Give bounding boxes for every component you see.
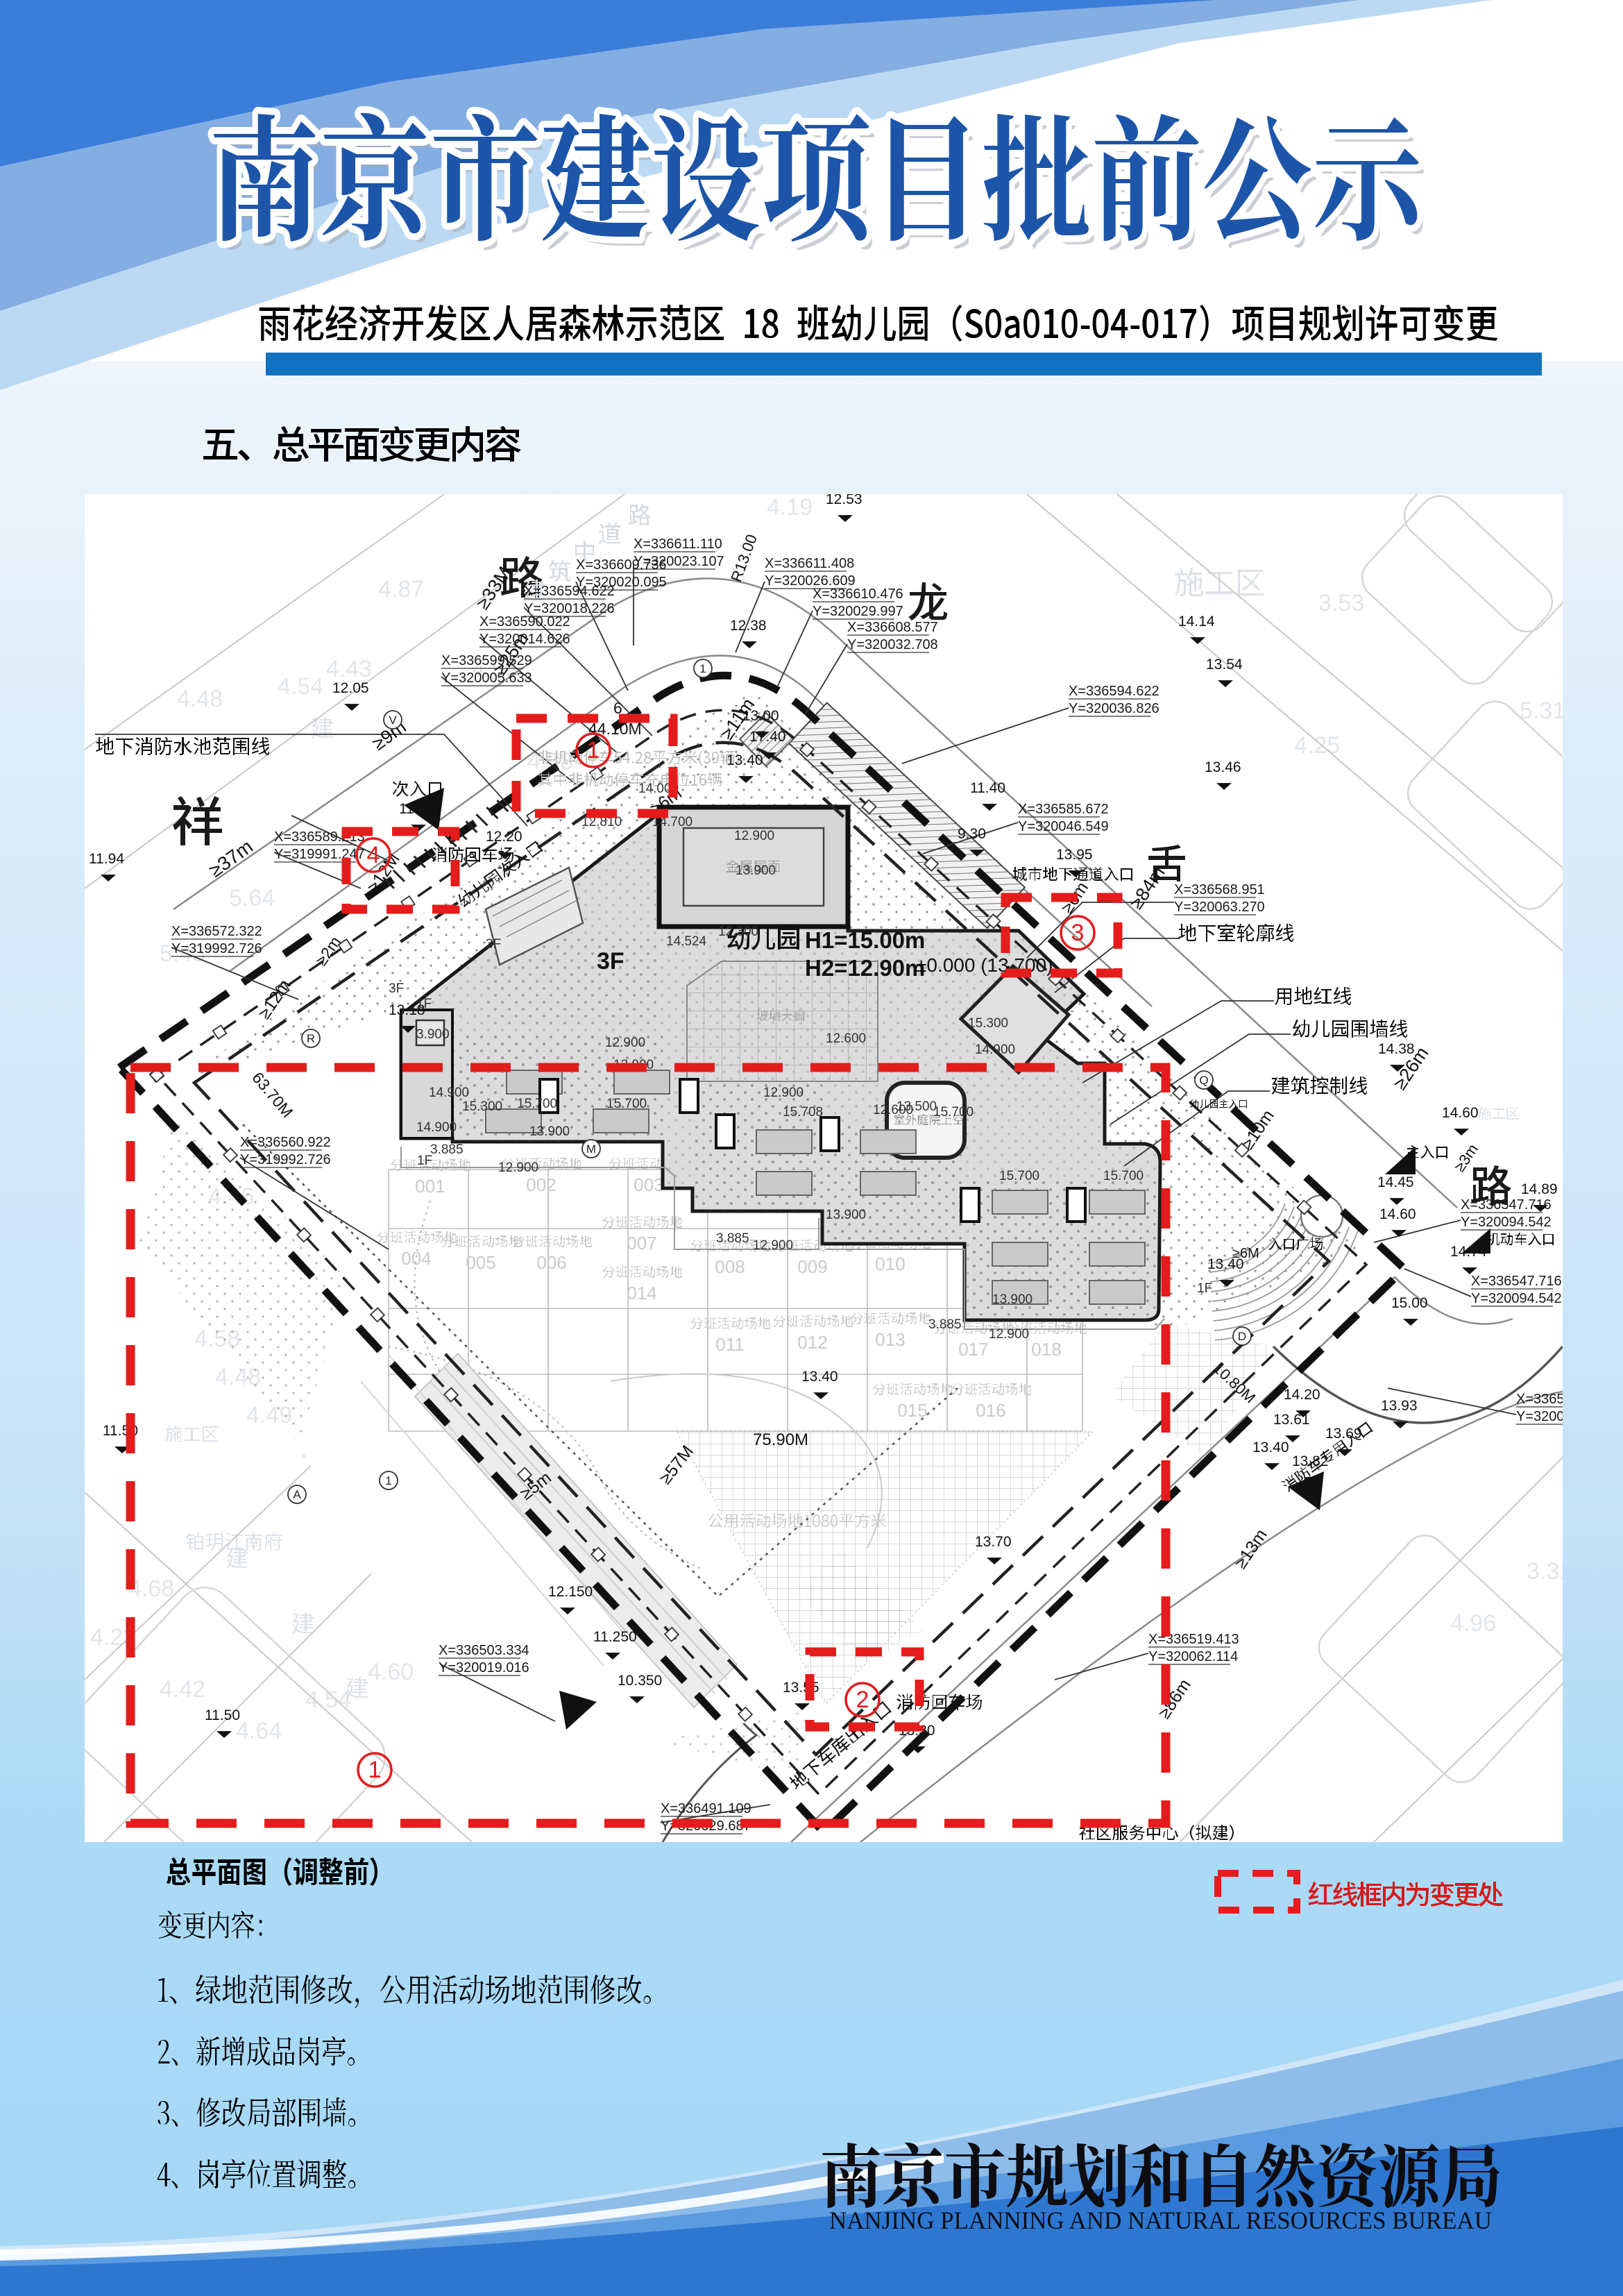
svg-text:13.00: 13.00 [742,708,779,724]
svg-text:13.54: 13.54 [1206,657,1243,673]
svg-text:X=336560.922: X=336560.922 [240,1135,331,1150]
svg-text:001: 001 [415,1176,445,1197]
svg-text:X=336608.577: X=336608.577 [847,620,938,635]
svg-text:4.43: 4.43 [326,656,372,682]
svg-text:Q: Q [1199,1074,1208,1087]
svg-text:4.54: 4.54 [278,673,323,700]
svg-text:13.95: 13.95 [1056,847,1093,863]
svg-text:Y=320094.542: Y=320094.542 [1471,1291,1562,1306]
svg-text:12.900: 12.900 [763,1086,804,1100]
svg-text:003: 003 [634,1174,663,1195]
svg-text:Y=319992.726: Y=319992.726 [240,1152,331,1167]
svg-text:75.90M: 75.90M [753,1430,808,1449]
svg-text:1: 1 [368,1757,382,1783]
svg-text:Y=320062.114: Y=320062.114 [1148,1649,1238,1664]
svg-text:11.50: 11.50 [205,1707,240,1723]
svg-text:12.600: 12.600 [873,1103,913,1117]
svg-text:Y=320036.826: Y=320036.826 [1069,701,1159,716]
svg-text:17.40: 17.40 [749,729,786,745]
svg-text:4.54: 4.54 [305,1687,351,1713]
svg-text:14.14: 14.14 [1178,614,1215,630]
svg-text:15.300: 15.300 [968,1016,1008,1031]
svg-text:15.300: 15.300 [462,1099,502,1114]
svg-text:14.900: 14.900 [429,1086,469,1100]
svg-text:X=336611.408: X=336611.408 [765,556,854,571]
svg-text:H1=15.00m: H1=15.00m [805,927,925,953]
svg-text:13.900: 13.900 [736,863,776,878]
svg-text:1: 1 [699,662,706,675]
svg-text:014: 014 [627,1283,656,1303]
svg-text:D: D [1238,1330,1246,1343]
svg-text:R: R [307,1032,315,1045]
svg-text:12.20: 12.20 [486,829,522,845]
svg-text:4.42: 4.42 [160,1676,205,1703]
svg-text:X=336611.110: X=336611.110 [634,537,722,552]
svg-text:15.700: 15.700 [933,1105,974,1120]
svg-text:12.600: 12.600 [826,1031,866,1046]
svg-text:3F: 3F [389,981,404,996]
svg-text:3.885: 3.885 [928,1317,962,1332]
svg-text:4.64: 4.64 [236,1718,282,1744]
svg-text:X=336594.622: X=336594.622 [524,584,615,599]
svg-text:5.31: 5.31 [1520,698,1565,724]
svg-text:12.900: 12.900 [498,1160,538,1175]
svg-text:H2=12.90m: H2=12.90m [805,955,925,981]
svg-text:13.900: 13.900 [826,1208,866,1222]
svg-text:15.700: 15.700 [517,1097,557,1111]
svg-text:M: M [586,1142,596,1156]
svg-text:X=336572.322: X=336572.322 [171,924,262,939]
svg-text:15.00: 15.00 [1391,1295,1428,1311]
svg-text:Y=320029.997: Y=320029.997 [813,604,903,619]
svg-text:1F: 1F [417,1154,432,1168]
svg-text:012: 012 [797,1332,827,1353]
svg-text:4.19: 4.19 [767,494,813,521]
svg-text:009: 009 [797,1256,827,1277]
svg-text:016: 016 [976,1400,1005,1421]
svg-text:12.38: 12.38 [730,618,767,634]
svg-text:Y=320005.633: Y=320005.633 [441,670,532,686]
svg-text:12.900: 12.900 [989,1327,1029,1342]
svg-text:14.20: 14.20 [1284,1387,1320,1403]
svg-text:13.46: 13.46 [1205,759,1241,775]
svg-text:12.300: 12.300 [718,925,758,939]
svg-text:017: 017 [958,1339,988,1360]
svg-text:NANJING PLANNING AND NATURAL R: NANJING PLANNING AND NATURAL RESOURCES B… [829,2206,1492,2234]
svg-text:X=336585.672: X=336585.672 [1018,802,1109,817]
svg-text:4.96: 4.96 [1450,1610,1496,1637]
svg-text:13.61: 13.61 [1273,1412,1310,1428]
svg-text:Y=319991.247: Y=319991.247 [274,847,365,862]
svg-text:X=336503.334: X=336503.334 [439,1643,529,1658]
svg-text:4.60: 4.60 [368,1659,414,1685]
svg-text:13.40: 13.40 [1252,1440,1289,1455]
svg-text:13.82: 13.82 [1292,1453,1329,1469]
svg-text:Y=320032.708: Y=320032.708 [847,637,938,652]
svg-text:13.70: 13.70 [975,1534,1012,1550]
svg-text:1F: 1F [1197,1281,1212,1296]
svg-text:X=336568.951: X=336568.951 [1174,882,1265,897]
svg-text:4.48: 4.48 [177,686,223,712]
svg-text:3.900: 3.900 [416,1027,450,1042]
svg-text:X=336547.716: X=336547.716 [1461,1197,1552,1213]
svg-text:1F: 1F [416,997,432,1011]
svg-text:Y=319992.726: Y=319992.726 [171,941,262,956]
svg-text:X=336609.736: X=336609.736 [576,557,667,573]
svg-text:X=336547.716: X=336547.716 [1471,1274,1562,1289]
svg-text:12.900: 12.900 [753,1238,793,1253]
svg-text:006: 006 [536,1252,566,1273]
svg-text:14.900: 14.900 [416,1120,457,1135]
svg-text:005: 005 [466,1252,495,1273]
svg-text:1: 1 [587,737,600,763]
svg-text:X=336610.476: X=336610.476 [813,586,903,602]
svg-text:007: 007 [627,1233,656,1253]
svg-text:14.524: 14.524 [666,934,707,949]
svg-text:11.250: 11.250 [593,1629,637,1645]
svg-text:12.150: 12.150 [548,1584,593,1600]
svg-text:14.60: 14.60 [1379,1206,1416,1222]
svg-text:013: 013 [875,1329,905,1350]
svg-text:011: 011 [715,1334,744,1355]
svg-text:004: 004 [401,1248,431,1269]
svg-text:15.700: 15.700 [999,1169,1039,1183]
svg-text:12.900: 12.900 [605,1036,645,1050]
svg-text:Y=320019.016: Y=320019.016 [439,1660,529,1675]
svg-text:13.93: 13.93 [1381,1398,1418,1414]
svg-text:15.700: 15.700 [606,1097,647,1111]
svg-text:11.94: 11.94 [89,851,124,867]
svg-text:4.87: 4.87 [378,576,424,602]
svg-text:15.700: 15.700 [1103,1169,1144,1183]
svg-text:13.900: 13.900 [992,1292,1033,1307]
svg-text:3F: 3F [486,937,501,952]
svg-text:4: 4 [367,842,380,868]
svg-text:2: 2 [856,1687,869,1713]
svg-text:Y=320094.542: Y=320094.542 [1461,1215,1552,1230]
svg-text:5.64: 5.64 [229,885,275,911]
svg-text:A: A [293,1488,301,1501]
svg-text:Y=320063.270: Y=320063.270 [1174,900,1265,915]
svg-text:X=336594.622: X=336594.622 [1069,684,1159,699]
svg-text:14.89: 14.89 [1521,1181,1558,1197]
svg-text:13.900: 13.900 [529,1124,570,1139]
svg-text:13.40: 13.40 [726,752,763,768]
svg-text:3.885: 3.885 [430,1142,464,1157]
svg-text:14.45: 14.45 [1377,1174,1414,1190]
svg-text:008: 008 [715,1256,745,1277]
svg-text:010: 010 [875,1253,905,1274]
svg-text:14.900: 14.900 [975,1043,1015,1057]
svg-text:15.708: 15.708 [783,1105,823,1120]
svg-text:X=336491.109: X=336491.109 [661,1801,751,1816]
svg-text:3.53: 3.53 [1318,590,1364,616]
svg-text:3: 3 [1071,920,1085,946]
svg-text:018: 018 [1031,1339,1061,1360]
svg-text:±0.000 (13.700): ±0.000 (13.700) [916,954,1053,976]
svg-text:X=336590.022: X=336590.022 [479,614,570,630]
svg-text:002: 002 [526,1174,556,1195]
svg-text:Y=320014.626: Y=320014.626 [479,632,570,647]
svg-text:1: 1 [385,1474,391,1487]
svg-text:4.68: 4.68 [128,1576,174,1602]
svg-text:12.05: 12.05 [332,680,369,696]
svg-text:13.69: 13.69 [1325,1426,1362,1442]
svg-text:9.30: 9.30 [958,826,986,842]
svg-text:Y=320046.549: Y=320046.549 [1018,819,1109,834]
svg-text:14.38: 14.38 [1378,1041,1415,1057]
svg-text:13.40: 13.40 [1207,1256,1244,1272]
svg-text:12.900: 12.900 [734,829,774,843]
svg-text:14.60: 14.60 [1442,1105,1479,1121]
svg-text:X=336599.529: X=336599.529 [441,653,532,668]
svg-text:3F: 3F [597,948,624,974]
svg-text:13.40: 13.40 [801,1369,838,1385]
svg-text:V: V [389,714,397,727]
svg-text:3.885: 3.885 [716,1231,749,1246]
svg-text:11.40: 11.40 [970,780,1005,796]
svg-text:10.350: 10.350 [618,1673,662,1689]
